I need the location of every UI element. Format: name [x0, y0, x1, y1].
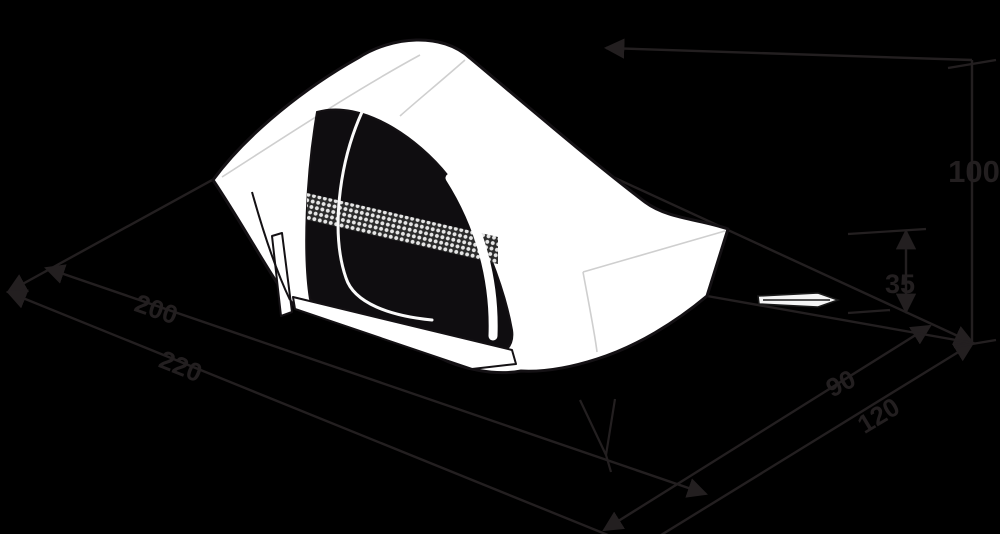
- inner-width-label: 90: [821, 363, 860, 403]
- height-label: 100: [948, 154, 1000, 189]
- outer-width-label: 120: [852, 391, 905, 439]
- rear-guyline: [758, 293, 838, 307]
- inner-length-label: 200: [131, 288, 182, 330]
- rear-height-bottom-tick: [848, 310, 890, 313]
- rear-base-leader: [707, 296, 973, 343]
- rear-height-top-tick: [848, 229, 926, 234]
- diagram-svg: 100 35 200 220 90 120: [0, 0, 1000, 534]
- rear-height-label: 35: [885, 269, 915, 299]
- outer-width-line: [640, 343, 973, 534]
- height-leader: [606, 48, 972, 60]
- tent-illustration: [213, 40, 728, 373]
- outer-length-label: 220: [155, 344, 206, 388]
- tent-dimension-diagram: 100 35 200 220 90 120: [0, 0, 1000, 534]
